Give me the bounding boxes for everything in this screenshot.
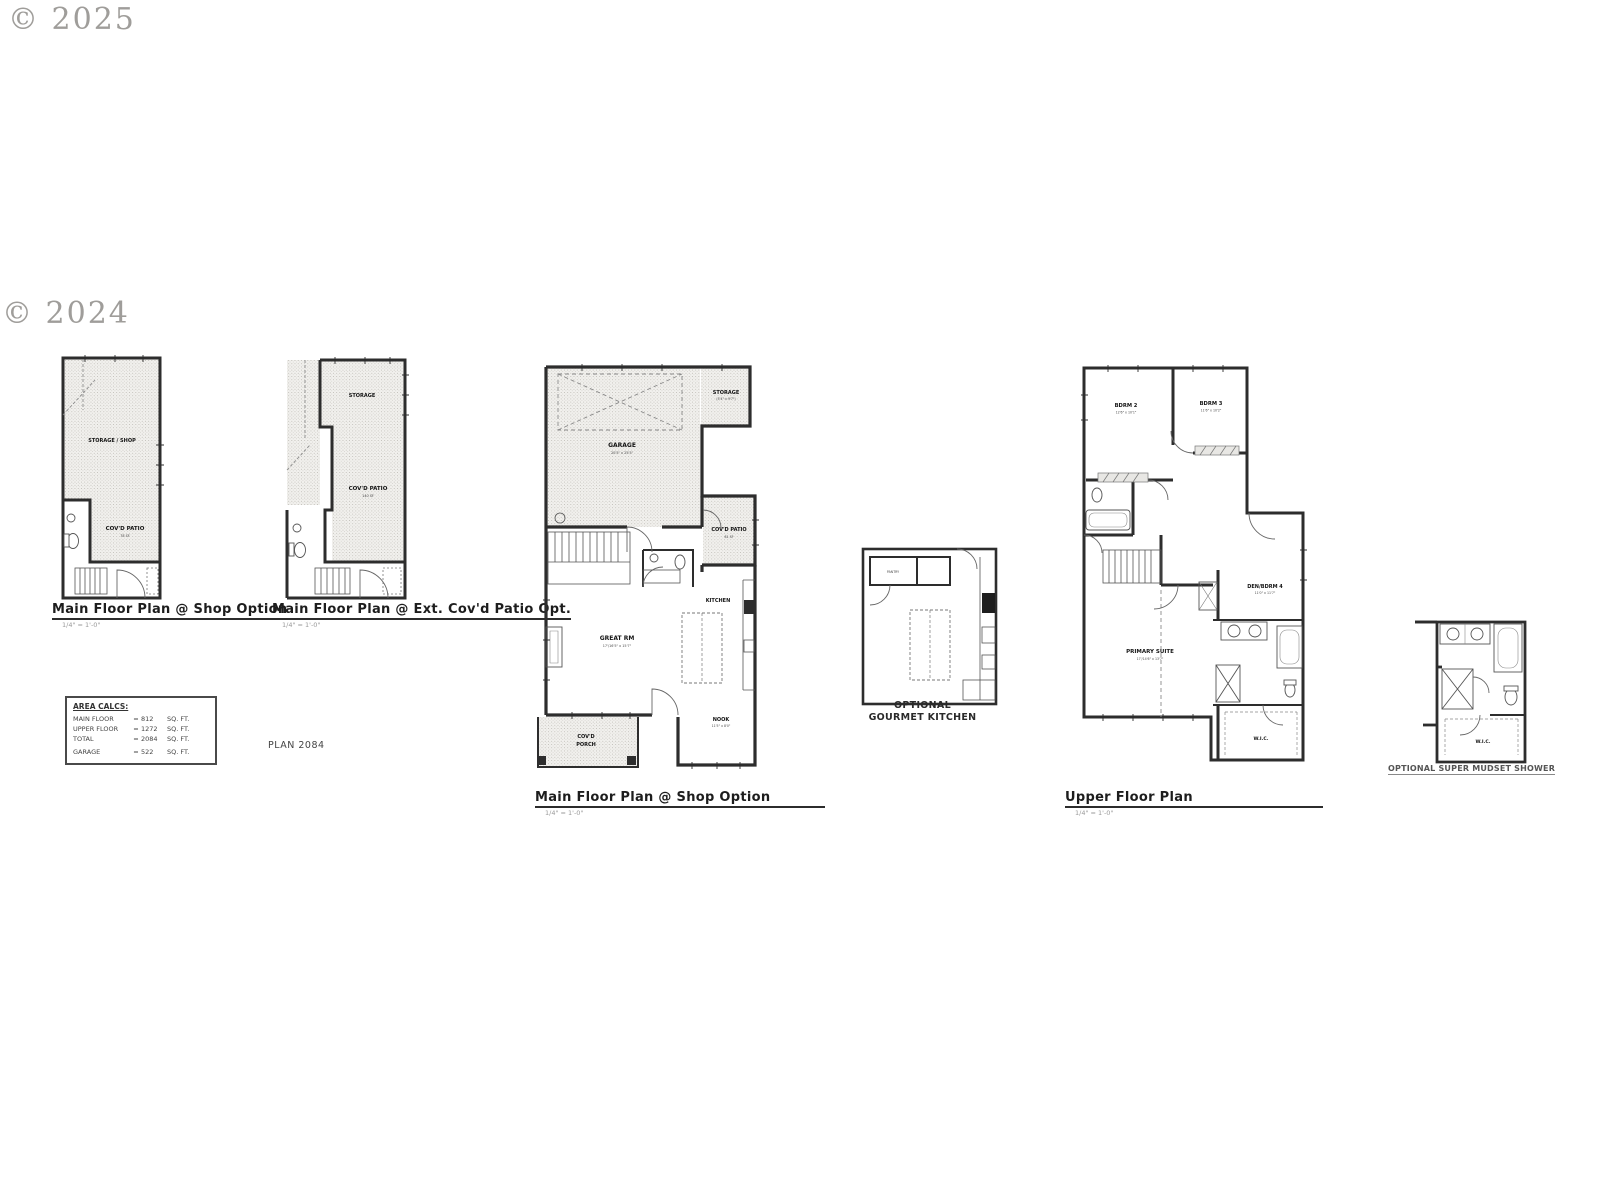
row-value: 812	[141, 715, 167, 725]
gourmet-kitchen-plan-drawing: PANTRY	[845, 535, 1000, 710]
nook-dims: 11'5" x 8'0"	[712, 724, 731, 728]
row-eq: =	[131, 748, 141, 758]
plan-scale: 1/4" = 1'-0"	[545, 809, 825, 817]
window-ticks	[1081, 365, 1307, 721]
stairs	[548, 532, 630, 584]
patio-sf-label: 81 SF	[725, 535, 734, 539]
patio-sf-label: 78 SF	[120, 534, 130, 538]
tub	[1277, 626, 1302, 668]
door-arcs	[1460, 677, 1489, 735]
plan-number-label: PLAN 2084	[268, 740, 325, 751]
toilet	[1504, 686, 1518, 705]
bdrm2-dims: 12'6" x 10'1"	[1116, 411, 1137, 415]
den-bdrm4-dims: 11'0" x 11'7"	[1255, 591, 1276, 595]
row-unit: SQ. FT.	[167, 725, 209, 735]
covd-patio-label: COV'D PATIO	[349, 486, 388, 492]
covd-patio-label: COV'D PATIO	[106, 526, 145, 532]
pantry-label: PANTRY	[887, 570, 899, 574]
copyright-watermark-2025: © 2025	[8, 2, 136, 37]
walls	[863, 549, 996, 704]
walls	[1084, 368, 1303, 760]
plan-scale: 1/4" = 1'-0"	[1075, 809, 1323, 817]
area-calcs-row-total: TOTAL = 2084 SQ. FT.	[73, 735, 209, 745]
bath-fixtures	[289, 524, 306, 558]
fireplace	[546, 627, 562, 667]
stairs	[75, 568, 107, 594]
upper-floor-title-block: Upper Floor Plan 1/4" = 1'-0"	[1065, 786, 1323, 817]
row-value: 1272	[141, 725, 167, 735]
storage-shop-label: STORAGE / SHOP	[88, 438, 136, 444]
nook-label: NOOK	[713, 717, 731, 723]
fireplace-inner	[550, 631, 558, 663]
stairs	[1103, 550, 1161, 583]
vanity	[1440, 624, 1490, 644]
window-sills	[1098, 446, 1239, 482]
patio-sf-label: 140 SF	[362, 494, 374, 498]
shop-option-small-title-block: Main Floor Plan @ Shop Option 1/4" = 1'-…	[52, 598, 287, 629]
main-floor-large-plan-drawing: GARAGE 20'5" x 25'5" STORAGE (5'4" x 9'7…	[522, 350, 762, 770]
row-unit: SQ. FT.	[167, 715, 209, 725]
closet-dashed	[383, 568, 401, 594]
area-calcs-row-main-floor: MAIN FLOOR = 812 SQ. FT.	[73, 715, 209, 725]
bath-fixtures	[1086, 488, 1130, 530]
storage-label: STORAGE	[349, 393, 376, 399]
caption-line-1: OPTIONAL	[845, 700, 1000, 712]
closet-dashed	[147, 568, 158, 594]
area-calcs-table: AREA CALCS: MAIN FLOOR = 812 SQ. FT. UPP…	[65, 696, 217, 765]
bdrm3-dims: 11'6" x 10'2"	[1201, 409, 1222, 413]
row-label: TOTAL	[73, 735, 131, 745]
row-label: GARAGE	[73, 748, 131, 758]
kitchen	[643, 570, 755, 690]
row-label: MAIN FLOOR	[73, 715, 131, 725]
vanity	[1221, 622, 1267, 640]
caption-line-2: GOURMET KITCHEN	[845, 712, 1000, 724]
row-value: 522	[141, 748, 167, 758]
garage-dims: 20'5" x 25'5"	[611, 451, 634, 455]
area-calcs-row-upper-floor: UPPER FLOOR = 1272 SQ. FT.	[73, 725, 209, 735]
plan-title: Main Floor Plan @ Shop Option	[535, 790, 825, 808]
counters-appliances	[963, 557, 995, 700]
area-calcs-title: AREA CALCS:	[73, 702, 209, 711]
powder-room	[643, 550, 693, 587]
ext-covd-patio-plan-drawing: STORAGE COV'D PATIO 140 SF	[275, 350, 410, 600]
row-label: UPPER FLOOR	[73, 725, 131, 735]
floorplan-sheet: © 2025 © 2024 STORAGE /	[0, 0, 1600, 1200]
row-eq: =	[131, 715, 141, 725]
bdrm2-label: BDRM 2	[1115, 403, 1138, 409]
shop-option-small-plan-drawing: STORAGE / SHOP COV'D PATIO 78 SF	[55, 350, 170, 600]
gourmet-kitchen-caption: OPTIONAL GOURMET KITCHEN	[845, 700, 1000, 724]
plan-title: Upper Floor Plan	[1065, 790, 1323, 808]
covd-porch-label-1: COV'D	[577, 734, 594, 740]
storage-shop-area	[64, 359, 159, 500]
great-rm-label: GREAT RM	[600, 635, 635, 642]
row-unit: SQ. FT.	[167, 735, 209, 745]
plan-title: Main Floor Plan @ Shop Option	[52, 602, 287, 620]
copyright-watermark-2024: © 2024	[2, 296, 130, 331]
den-bdrm4-label: DEN/BDRM 4	[1247, 584, 1283, 590]
island	[910, 610, 950, 680]
shower	[1442, 669, 1473, 709]
storage-label: STORAGE	[713, 390, 740, 396]
row-unit: SQ. FT.	[167, 748, 209, 758]
mudset-shower-caption: OPTIONAL SUPER MUDSET SHOWER	[1388, 764, 1555, 775]
row-value: 2084	[141, 735, 167, 745]
upper-floor-plan-drawing: BDRM 2 12'6" x 10'1" BDRM 3 11'6" x 10'2…	[1053, 350, 1311, 765]
covd-porch-label-2: PORCH	[576, 742, 596, 748]
wic-label: W.I.C.	[1475, 739, 1490, 745]
row-eq: =	[131, 735, 141, 745]
wic-shelves-dashed	[1225, 712, 1297, 755]
kitchen-label: KITCHEN	[706, 598, 731, 604]
cut-area	[287, 360, 320, 505]
row-eq: =	[131, 725, 141, 735]
garage-label: GARAGE	[608, 442, 636, 449]
mudset-shower-plan-drawing: W.I.C.	[1385, 597, 1535, 769]
mud-bench	[643, 570, 680, 583]
stairs	[315, 568, 350, 594]
covd-patio-label: COV'D PATIO	[711, 527, 746, 533]
storage-dims: (5'4" x 9'7")	[716, 397, 735, 401]
primary-suite-label: PRIMARY SUITE	[1126, 649, 1174, 655]
entry-door-arc	[117, 570, 145, 598]
toilet	[1284, 680, 1296, 697]
main-floor-large-title-block: Main Floor Plan @ Shop Option 1/4" = 1'-…	[535, 786, 825, 817]
wic-label: W.I.C.	[1253, 736, 1268, 742]
wic-shelves-dashed	[1445, 719, 1518, 755]
great-rm-dims: 17'/16'5" x 15'7"	[603, 644, 632, 648]
tub	[1494, 624, 1522, 672]
shower	[1216, 665, 1240, 702]
bdrm3-label: BDRM 3	[1200, 401, 1223, 407]
plan-scale: 1/4" = 1'-0"	[62, 621, 287, 629]
area-calcs-row-garage: GARAGE = 522 SQ. FT.	[73, 748, 209, 758]
primary-suite-dims: 17'/14'6" x 13'7"	[1137, 657, 1164, 661]
bath-fixtures	[64, 514, 79, 549]
